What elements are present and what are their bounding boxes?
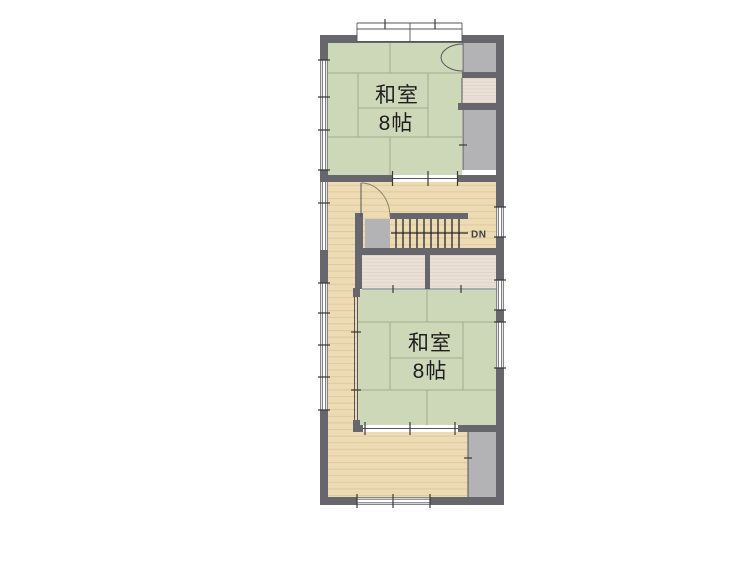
closet-top-right-lower — [463, 110, 497, 170]
stairs-dn-label: DN — [471, 230, 486, 241]
tatami-room-top-floor — [328, 43, 462, 175]
oshiire-closet-right — [430, 255, 497, 288]
wall-stair-top — [390, 213, 468, 219]
room-top-name-label: 和室 — [375, 84, 419, 107]
oshiire-closet-left — [362, 255, 425, 288]
floor-plan-drawing: 和室 8帖 和室 8帖 DN — [0, 0, 743, 567]
veranda-floor — [328, 432, 468, 497]
closet-top-right-upper — [463, 43, 497, 72]
wall-oshiire-left — [355, 255, 362, 289]
room-bottom-name-label: 和室 — [408, 332, 452, 355]
room-bottom-size-label: 8帖 — [413, 360, 448, 383]
wall-oshiire-divider — [425, 255, 430, 289]
wall-closet-divider-1 — [462, 72, 504, 78]
tatami-room-bottom — [358, 290, 497, 425]
closet-top-right-middle — [462, 78, 497, 103]
room-top-size-label: 8帖 — [379, 112, 414, 135]
wall-hall-bottom — [355, 248, 504, 255]
tatami-room-top — [328, 43, 462, 175]
closet-bottom-right — [468, 432, 497, 497]
window-top — [357, 19, 462, 42]
stair-landing — [365, 219, 390, 248]
wall-room-bottom-bottom-right — [458, 425, 504, 432]
wall-closet-divider-2 — [458, 103, 504, 110]
wall-room-bottom-bottom-left-stub — [353, 425, 363, 432]
wall-room-top-bottom-left — [320, 175, 392, 182]
wall-room-bottom-left-stub-top — [353, 288, 360, 297]
wall-room-top-bottom-right — [458, 175, 504, 182]
corridor-floor — [328, 255, 358, 432]
floor-plan-page: 和室 8帖 和室 8帖 DN — [0, 0, 743, 567]
